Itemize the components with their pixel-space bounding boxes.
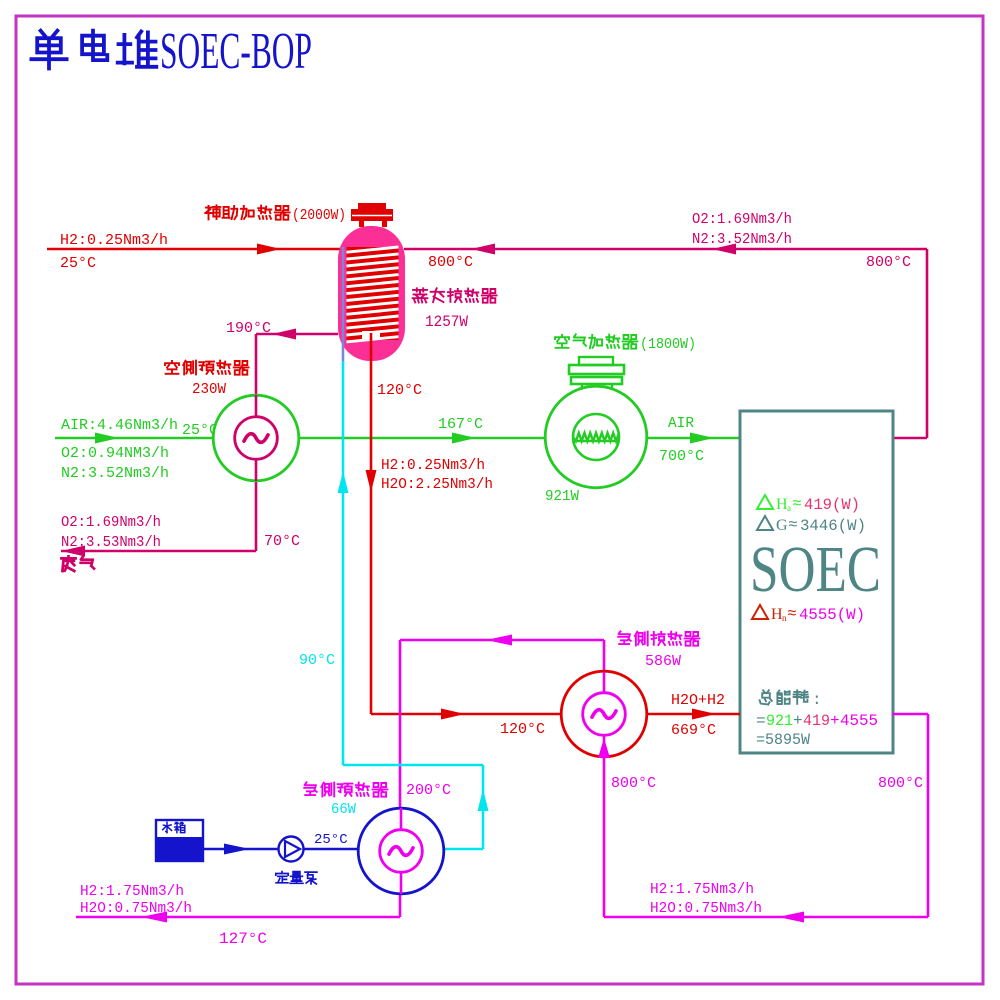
- svg-text::: :: [812, 691, 822, 709]
- svg-text:AIR:4.46Nm3/h: AIR:4.46Nm3/h: [61, 417, 178, 434]
- svg-text:O2:1.69Nm3/h: O2:1.69Nm3/h: [61, 514, 161, 531]
- svg-text:4555: 4555: [840, 712, 878, 730]
- svg-text:419(W): 419(W): [804, 496, 860, 514]
- svg-text:127°C: 127°C: [219, 930, 267, 948]
- svg-text:≈: ≈: [787, 605, 797, 623]
- svg-text:921W: 921W: [545, 488, 579, 505]
- svg-text:1257W: 1257W: [425, 313, 468, 331]
- svg-text:O2:1.69Nm3/h: O2:1.69Nm3/h: [692, 211, 792, 228]
- svg-text:25°C: 25°C: [60, 255, 96, 272]
- svg-text:AIR: AIR: [668, 415, 694, 432]
- svg-text:800°C: 800°C: [866, 254, 911, 271]
- svg-text:669°C: 669°C: [671, 722, 716, 739]
- svg-text:120°C: 120°C: [377, 382, 422, 399]
- svg-text:=: =: [756, 712, 766, 730]
- svg-text:190°C: 190°C: [226, 320, 271, 337]
- svg-text:H2O:0.75Nm3/h: H2O:0.75Nm3/h: [80, 900, 192, 917]
- svg-text:230W: 230W: [192, 381, 226, 398]
- svg-text:90°C: 90°C: [299, 652, 335, 669]
- svg-text:66W: 66W: [331, 801, 356, 818]
- svg-text:800°C: 800°C: [428, 254, 473, 271]
- svg-text:G: G: [776, 517, 788, 534]
- svg-text:≈: ≈: [792, 495, 802, 513]
- svg-text:25°C: 25°C: [314, 832, 348, 848]
- svg-text:≈: ≈: [788, 516, 798, 534]
- svg-text:=5895W: =5895W: [756, 731, 810, 749]
- svg-text:a: a: [787, 503, 791, 513]
- svg-text:921: 921: [766, 712, 793, 730]
- svg-text:586W: 586W: [645, 653, 681, 670]
- svg-text:+: +: [793, 712, 803, 730]
- svg-text:SOEC: SOEC: [750, 533, 881, 606]
- svg-text:70°C: 70°C: [264, 533, 300, 550]
- svg-text:800°C: 800°C: [611, 775, 656, 792]
- svg-text:H2O:0.75Nm3/h: H2O:0.75Nm3/h: [650, 900, 762, 917]
- svg-text:H2:1.75Nm3/h: H2:1.75Nm3/h: [80, 883, 184, 900]
- svg-text:H2:1.75Nm3/h: H2:1.75Nm3/h: [650, 881, 754, 898]
- svg-text:4555(W): 4555(W): [799, 606, 865, 624]
- svg-text:SOEC-BOP: SOEC-BOP: [160, 23, 312, 80]
- svg-text:419: 419: [803, 712, 830, 730]
- svg-text:800°C: 800°C: [878, 775, 923, 792]
- svg-text:(2000W): (2000W): [292, 207, 346, 224]
- svg-text:167°C: 167°C: [438, 416, 483, 433]
- svg-text:N2:3.52Nm3/h: N2:3.52Nm3/h: [692, 231, 792, 248]
- svg-text:H2:0.25Nm3/h: H2:0.25Nm3/h: [381, 457, 485, 474]
- svg-text:O2:0.94NM3/h: O2:0.94NM3/h: [61, 445, 169, 462]
- svg-text:200°C: 200°C: [406, 782, 451, 799]
- svg-text:H2O+H2: H2O+H2: [671, 692, 725, 709]
- svg-text:120°C: 120°C: [500, 721, 545, 738]
- svg-text:H2:0.25Nm3/h: H2:0.25Nm3/h: [60, 232, 168, 249]
- svg-text:700°C: 700°C: [659, 448, 704, 465]
- svg-text:+: +: [830, 712, 840, 730]
- svg-text:N2:3.52Nm3/h: N2:3.52Nm3/h: [61, 465, 169, 482]
- svg-text:H2O:2.25Nm3/h: H2O:2.25Nm3/h: [381, 476, 493, 493]
- svg-text:(1800W): (1800W): [640, 336, 696, 353]
- svg-text:N2:3.53Nm3/h: N2:3.53Nm3/h: [61, 534, 161, 551]
